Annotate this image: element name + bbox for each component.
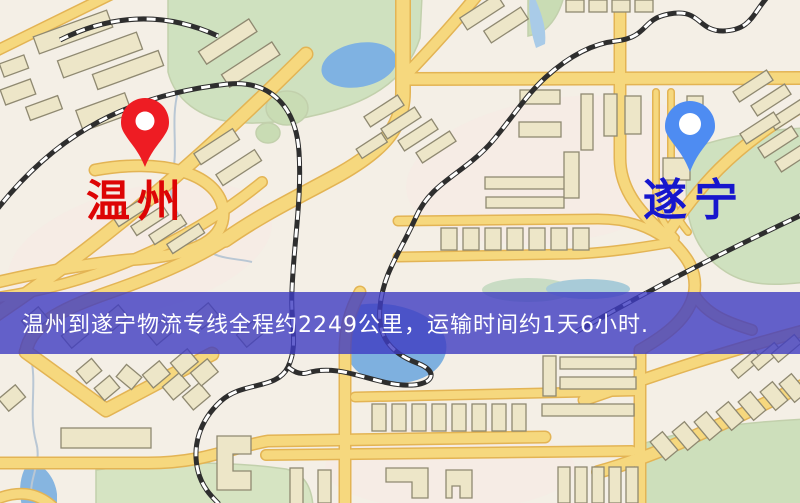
route-info-banner: 温州到遂宁物流专线全程约2249公里，运输时间约1天6小时. <box>0 292 800 354</box>
logistics-route-map: 温州 遂宁 温州到遂宁物流专线全程约2249公里，运输时间约1天6小时. <box>0 0 800 503</box>
destination-city-label: 遂宁 <box>643 179 745 223</box>
origin-city-label: 温州 <box>86 180 188 224</box>
map-canvas <box>0 0 800 503</box>
route-info-text: 温州到遂宁物流专线全程约2249公里，运输时间约1天6小时. <box>22 307 649 339</box>
origin-pin-hole <box>136 112 155 131</box>
destination-pin-hole <box>679 113 701 135</box>
